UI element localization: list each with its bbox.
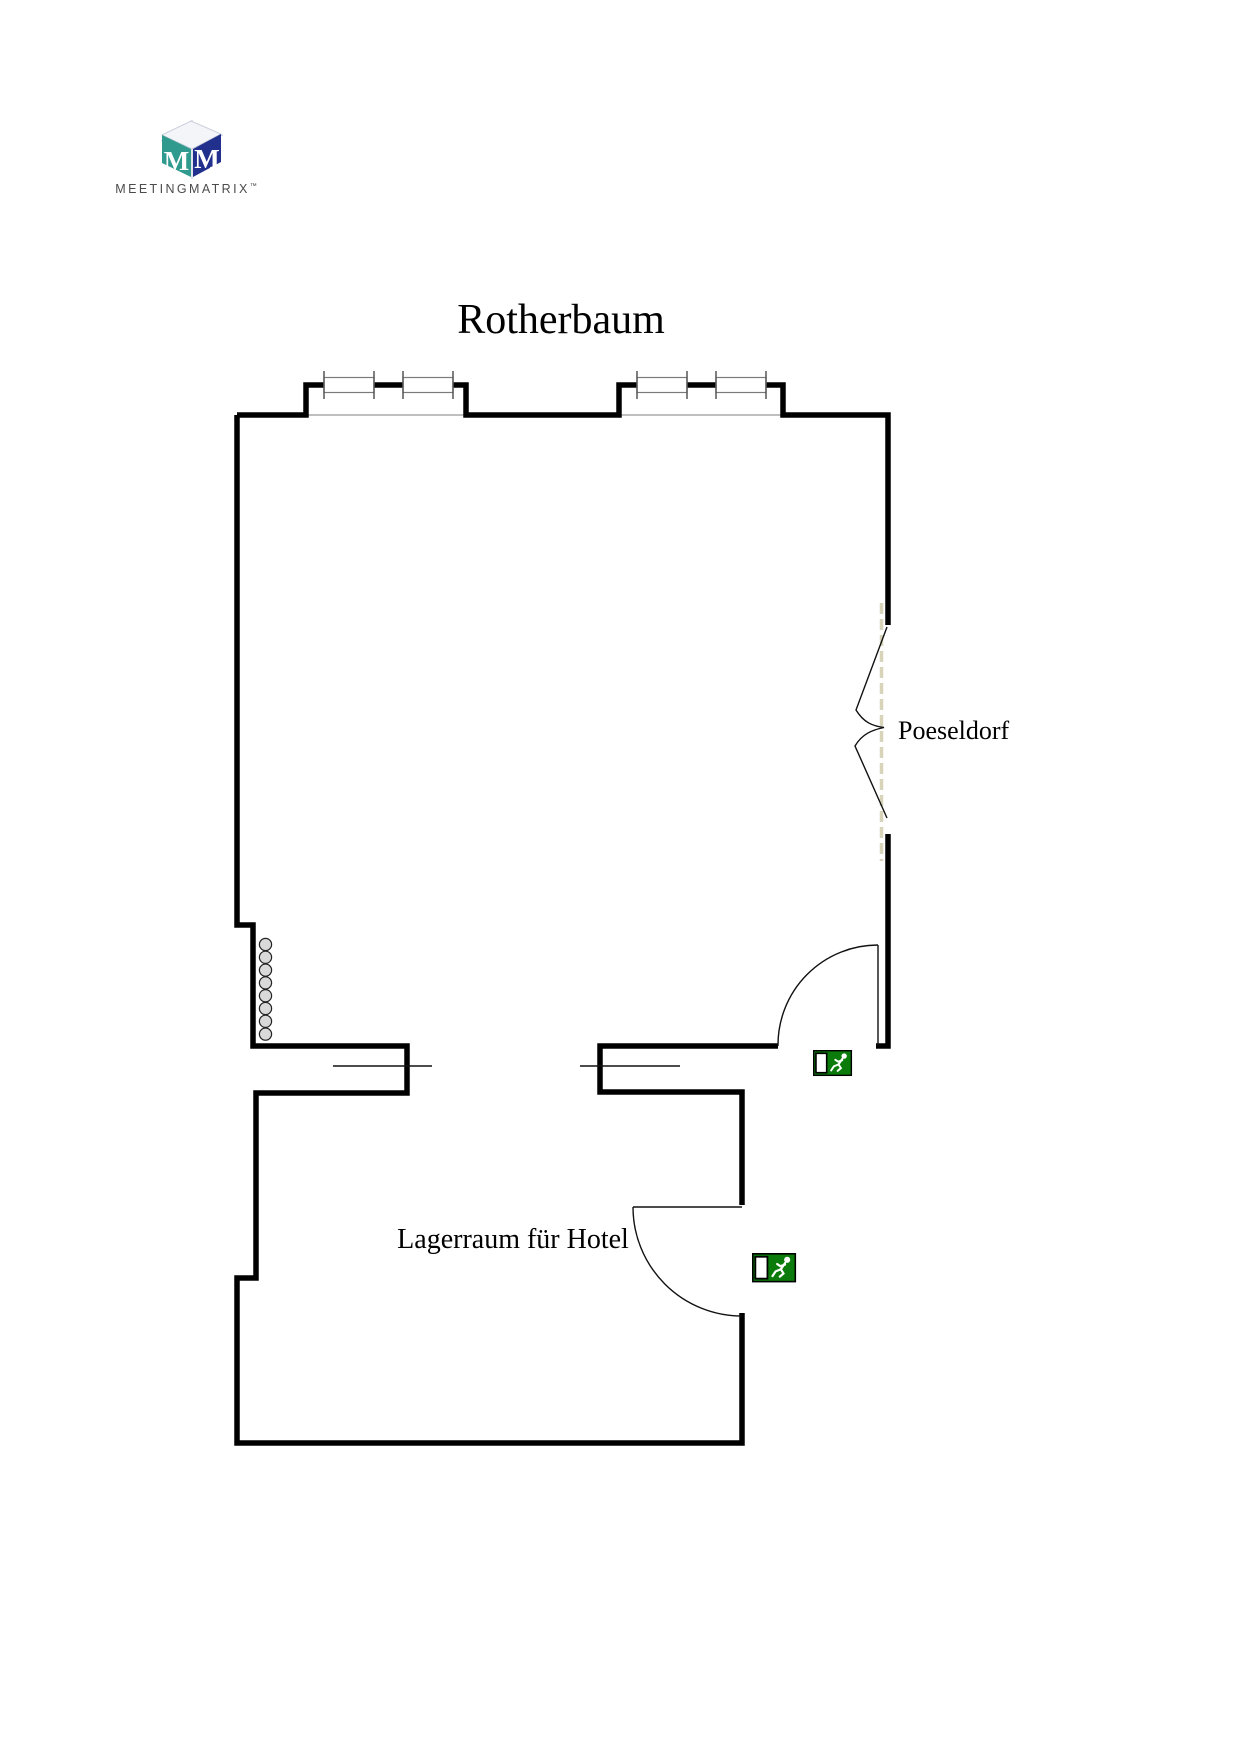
bumper-dot <box>259 938 271 950</box>
wall-bumper-dots <box>259 938 271 1040</box>
room-title: Rotherbaum <box>457 297 665 343</box>
exit-door-lower <box>633 1207 742 1316</box>
poeseldorf-label: Poeseldorf <box>898 716 1010 745</box>
exit-sign-icon <box>753 1254 796 1282</box>
window-symbol <box>637 378 687 393</box>
bumper-dot <box>259 1015 271 1027</box>
bumper-dot <box>259 1002 271 1014</box>
exit-sign-icon <box>814 1051 852 1076</box>
exit-door-upper <box>778 945 878 1046</box>
bumper-dot <box>259 964 271 976</box>
main-room-top-and-right-wall <box>237 385 888 625</box>
main-room-bottom-and-step-wall <box>600 1046 778 1205</box>
floor-plan-svg: Rotherbaum Poeseldorf <box>0 0 1240 1755</box>
floor-plan-page: { "logo": { "brand": "MEETINGMATRIX", "t… <box>0 0 1240 1755</box>
window-symbol <box>324 378 374 393</box>
lower-room-label: Lagerraum für Hotel <box>397 1224 629 1255</box>
bumper-dot <box>259 951 271 963</box>
door-swing-arc <box>778 945 878 1046</box>
window-symbol <box>403 378 453 393</box>
window-symbol <box>716 378 766 393</box>
bumper-dot <box>259 1028 271 1040</box>
lower-room-and-left-wall <box>237 415 742 1443</box>
door-swing-arc <box>633 1207 742 1316</box>
bumper-dot <box>259 977 271 989</box>
bumper-dot <box>259 990 271 1002</box>
